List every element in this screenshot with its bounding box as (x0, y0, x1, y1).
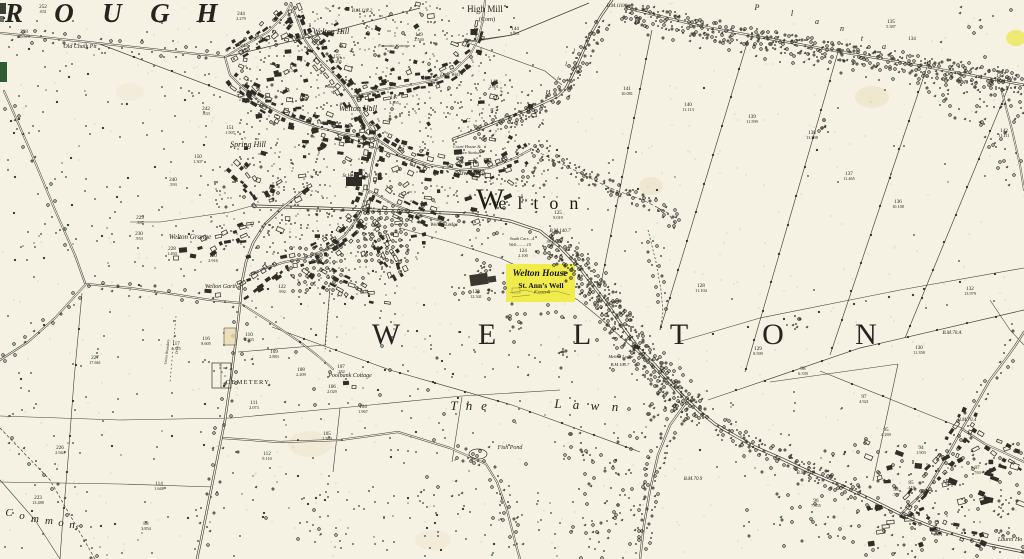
svg-text:Fountain Cottage: Fountain Cottage (377, 43, 410, 48)
svg-text:13.480: 13.480 (32, 500, 44, 505)
svg-text:.631: .631 (39, 9, 47, 14)
svg-text:1.507: 1.507 (225, 130, 236, 135)
svg-text:9.081: 9.081 (510, 31, 520, 36)
svg-text:Well..........10: Well..........10 (509, 242, 532, 247)
svg-text:Spring Hill: Spring Hill (230, 140, 267, 149)
svg-text:i: i (557, 75, 559, 82)
svg-text:3.854: 3.854 (141, 526, 152, 531)
svg-text:Fish Pond: Fish Pond (497, 445, 524, 451)
svg-text:Old Chalk Pit: Old Chalk Pit (63, 44, 97, 50)
svg-text:R: R (4, 0, 23, 28)
svg-text:17.661: 17.661 (89, 360, 101, 365)
svg-text:m: m (31, 513, 39, 525)
svg-text:B.M.74.A: B.M.74.A (796, 471, 816, 476)
svg-text:4.921: 4.921 (859, 399, 869, 404)
svg-text:L: L (553, 396, 561, 411)
svg-text:(Covered): (Covered) (534, 289, 551, 294)
svg-text:.953: .953 (135, 236, 143, 241)
svg-text:B.M.105.7: B.M.105.7 (611, 362, 631, 367)
svg-text:B.M.70.9: B.M.70.9 (684, 477, 703, 482)
svg-text:n: n (69, 519, 75, 531)
svg-text:(Corn): (Corn) (479, 16, 495, 23)
svg-text:n: n (612, 399, 619, 414)
svg-text:2.209: 2.209 (296, 372, 306, 377)
svg-text:1.967: 1.967 (358, 409, 369, 414)
svg-text:11.599: 11.599 (746, 119, 758, 124)
svg-text:2.100: 2.100 (518, 253, 528, 258)
svg-text:B.M.70.A: B.M.70.A (942, 331, 962, 336)
svg-text:.282: .282 (337, 369, 345, 374)
svg-text:10.108: 10.108 (892, 204, 904, 209)
svg-text:12.341: 12.341 (470, 294, 482, 299)
svg-text:Welton House: Welton House (513, 269, 569, 279)
svg-text:e: e (481, 398, 487, 413)
svg-text:6.339: 6.339 (798, 371, 808, 376)
svg-text:CEMETERY: CEMETERY (226, 379, 270, 386)
svg-text:11.358: 11.358 (913, 350, 925, 355)
svg-text:P: P (754, 3, 760, 12)
svg-text:W: W (372, 318, 401, 351)
svg-text:B.M.70.4: B.M.70.4 (958, 418, 977, 423)
svg-text:H: H (195, 0, 218, 28)
svg-text:2.279: 2.279 (236, 16, 246, 21)
svg-text:11.113: 11.113 (682, 107, 694, 112)
svg-text:9.110: 9.110 (262, 456, 272, 461)
svg-text:m: m (45, 515, 53, 527)
svg-text:5.387: 5.387 (886, 24, 897, 29)
svg-text:4.269: 4.269 (881, 432, 891, 437)
svg-text:2.883: 2.883 (269, 354, 279, 359)
svg-text:Laurel Ho: Laurel Ho (997, 537, 1023, 543)
svg-text:N: N (855, 318, 877, 351)
svg-text:134: 134 (908, 36, 916, 42)
svg-text:13.979: 13.979 (964, 291, 976, 296)
svg-text:Court House &: Court House & (453, 144, 481, 149)
svg-text:South Carr....4: South Carr....4 (510, 236, 535, 241)
svg-text:o: o (19, 510, 25, 522)
svg-text:a: a (882, 42, 886, 51)
svg-text:U: U (102, 0, 123, 28)
svg-text:4.375: 4.375 (171, 346, 181, 351)
svg-text:T: T (670, 318, 688, 351)
svg-text:1.648: 1.648 (154, 486, 164, 491)
svg-text:1.307: 1.307 (193, 159, 204, 164)
svg-text:8.605: 8.605 (201, 341, 211, 346)
svg-text:.992: .992 (278, 289, 286, 294)
svg-text:O: O (762, 318, 784, 351)
svg-text:Poolbank Cottage: Poolbank Cottage (327, 373, 372, 379)
svg-text:O: O (54, 0, 74, 28)
svg-text:E: E (478, 318, 496, 351)
svg-text:11.104: 11.104 (695, 288, 708, 293)
svg-text:2.029: 2.029 (327, 389, 337, 394)
svg-text:2.944: 2.944 (55, 450, 66, 455)
svg-text:T: T (450, 398, 458, 413)
svg-text:2.073: 2.073 (249, 405, 259, 410)
svg-text:a: a (815, 17, 819, 26)
svg-text:2.389: 2.389 (322, 436, 332, 441)
svg-text:h: h (466, 398, 473, 413)
svg-text:11.465: 11.465 (843, 176, 855, 181)
svg-text:13.598: 13.598 (806, 135, 818, 140)
svg-text:l: l (565, 61, 567, 68)
svg-text:l: l (573, 48, 575, 55)
svg-text:.593: .593 (169, 182, 177, 187)
svg-text:.763: .763 (973, 470, 981, 475)
svg-text:9.019: 9.019 (553, 215, 563, 220)
svg-text:}N.B: }N.B (546, 239, 555, 244)
svg-text:Pump: Pump (324, 84, 336, 89)
svg-text:n: n (840, 24, 844, 33)
svg-text:w: w (591, 398, 600, 413)
svg-text:C: C (5, 507, 13, 519)
svg-text:B.M.118.2: B.M.118.2 (352, 9, 373, 14)
svg-text:10.570: 10.570 (18, 34, 30, 39)
svg-text:1.903: 1.903 (916, 450, 926, 455)
svg-text:Welton Garth: Welton Garth (205, 284, 237, 290)
svg-text:2.916: 2.916 (208, 258, 219, 263)
svg-text:10.081: 10.081 (621, 91, 633, 96)
svg-text:L: L (573, 318, 591, 351)
svg-text:8.599: 8.599 (753, 351, 763, 356)
svg-text:G: G (150, 0, 170, 28)
svg-text:o: o (58, 517, 64, 529)
svg-text:1.494: 1.494 (167, 251, 178, 256)
svg-text:a: a (573, 397, 580, 412)
svg-text:High Mill: High Mill (467, 4, 503, 14)
